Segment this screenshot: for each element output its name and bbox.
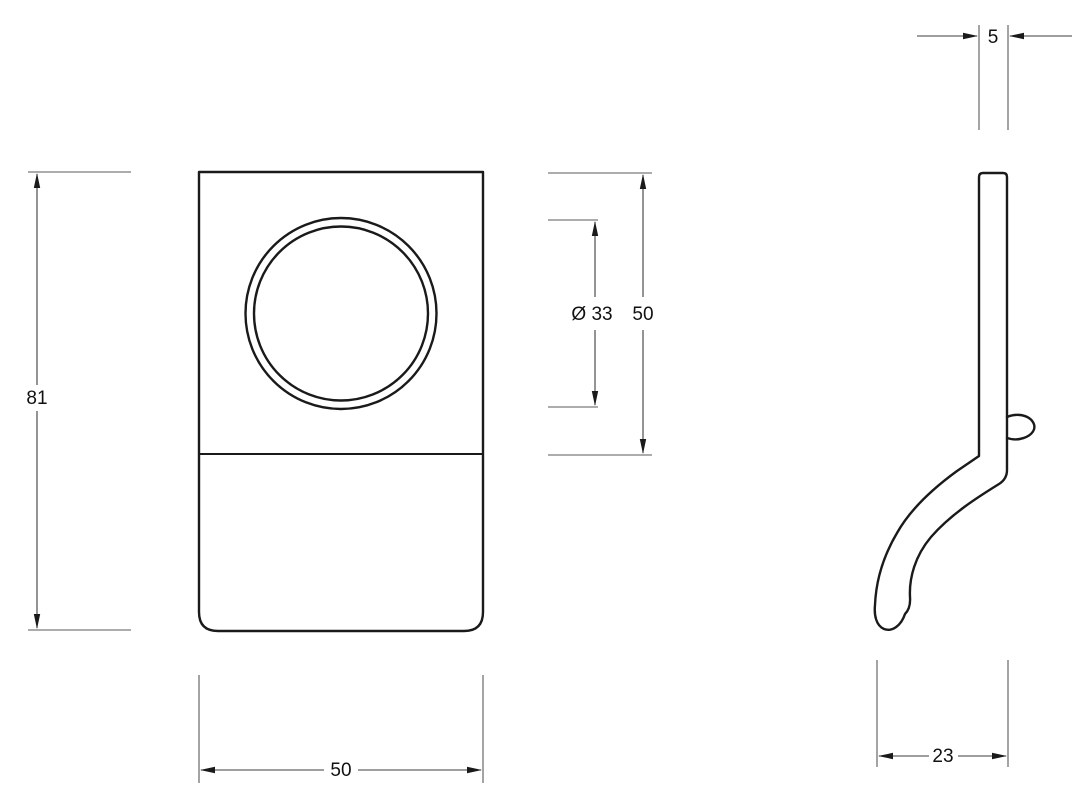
dimension-overall-height: 81	[26, 172, 131, 630]
dimension-overall-height-label: 81	[26, 388, 47, 409]
dimension-plate-thickness-label: 5	[988, 27, 999, 48]
dimension-pull-depth: 23	[877, 660, 1008, 767]
side-catch-bump	[1007, 415, 1034, 440]
dimension-top-section-height-label: 50	[632, 304, 653, 325]
dimension-pull-depth-label: 23	[932, 746, 953, 767]
drawing-canvas: 81 50 Ø 33 50	[0, 0, 1080, 798]
front-view	[199, 172, 483, 631]
dimension-cylinder-diameter: Ø 33	[548, 220, 613, 407]
dimension-plate-width: 50	[199, 675, 483, 783]
dimension-plate-width-label: 50	[330, 760, 351, 781]
side-profile-outline	[875, 173, 1007, 630]
dimension-plate-thickness: 5	[917, 25, 1072, 130]
cylinder-inner-circle	[254, 227, 428, 401]
cylinder-outer-circle	[246, 218, 437, 409]
dimension-cylinder-diameter-label: Ø 33	[571, 304, 612, 325]
technical-drawing: 81 50 Ø 33 50	[0, 0, 1080, 798]
side-view	[875, 173, 1035, 630]
